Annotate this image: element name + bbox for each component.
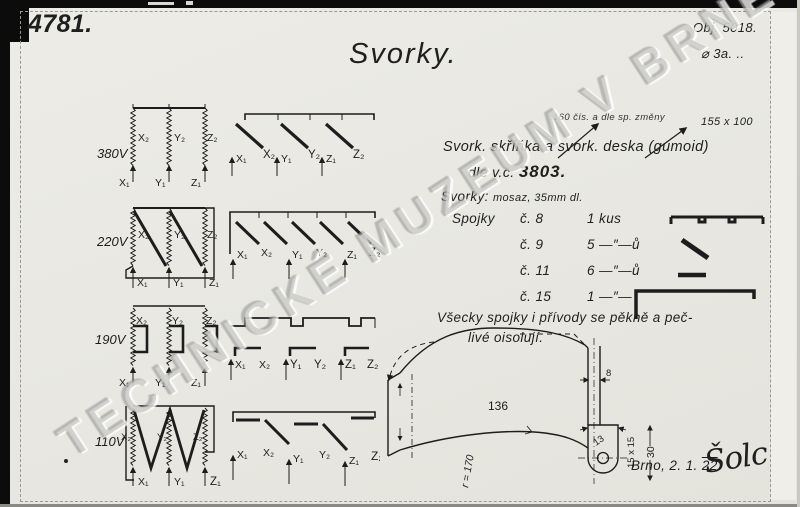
svg-text:X₂: X₂ xyxy=(138,229,149,241)
link-count: 1 kus xyxy=(587,211,621,226)
svg-text:Y₂: Y₂ xyxy=(314,359,326,371)
svg-text:Z₁: Z₁ xyxy=(191,177,201,189)
size-note: 155 x 100 xyxy=(701,116,753,128)
svg-text:Z₁: Z₁ xyxy=(345,359,356,371)
svg-text:Y₂: Y₂ xyxy=(316,247,327,259)
svg-text:Y₂: Y₂ xyxy=(157,432,167,443)
schematic-110v: 110V X₂ Y₂ Z₂ X₁ Y₁ Z₁ X₁ xyxy=(93,392,380,493)
svg-text:X₁: X₁ xyxy=(237,249,248,261)
note-box-and-plate: Svork. skříňka a svork. deska (gumoid) xyxy=(443,139,709,155)
note-per-drawing: dle v.č. 3803. xyxy=(468,162,566,182)
referenced-drawing-number: 3803. xyxy=(519,162,567,181)
scan-speck xyxy=(186,1,193,5)
svg-text:X₂: X₂ xyxy=(263,447,274,459)
link-number: č. 15 xyxy=(520,289,551,304)
short-link-icon xyxy=(674,269,734,281)
strap-detail-drawing: 136 r = 170 8 13 15 x 15 30 xyxy=(372,318,702,503)
scan-speck xyxy=(148,2,174,5)
svg-text:Z₁: Z₁ xyxy=(326,153,336,165)
voltage-label: 220V xyxy=(96,234,129,249)
links-list-label: Spojky xyxy=(452,211,495,226)
dim-tab-width: 8 xyxy=(606,368,611,379)
svg-text:Z₁: Z₁ xyxy=(209,277,219,289)
svg-text:Z₂: Z₂ xyxy=(369,247,380,259)
schematic-220v: 220V X₂ Y₂ Z₂ X₁ Y₁ Z₁ X₁ xyxy=(93,194,380,294)
object-number: Obj. 5018. xyxy=(693,20,757,35)
links-list: Spojky č. 8 1 kus č. 9 5 —″—ů č. 11 6 —″… xyxy=(452,211,782,315)
links-row-8: Spojky č. 8 1 kus xyxy=(452,211,782,237)
svg-text:Y₁: Y₁ xyxy=(174,476,185,488)
svg-text:Z₁: Z₁ xyxy=(347,249,357,261)
link-count: 5 —″—ů xyxy=(587,237,640,252)
terminals-label: Svorky: xyxy=(441,189,489,204)
svg-text:Z₂: Z₂ xyxy=(207,229,218,241)
svg-text:X₁: X₁ xyxy=(119,177,130,189)
svg-text:Y₁: Y₁ xyxy=(293,453,304,465)
svg-text:X₂: X₂ xyxy=(138,132,149,144)
object-subnumber: ⌀ 3a. .. xyxy=(701,46,745,62)
svg-text:Y₁: Y₁ xyxy=(290,359,302,371)
scan-speck xyxy=(64,459,68,463)
svg-text:X₂: X₂ xyxy=(261,247,272,259)
svg-text:Y₁: Y₁ xyxy=(155,377,166,389)
svg-text:X₁: X₁ xyxy=(237,449,248,461)
voltage-label: 190V xyxy=(95,332,127,347)
note-terminals-material: Svorky: mosaz, 35mm dl. xyxy=(441,189,583,204)
svg-text:X₁: X₁ xyxy=(119,377,130,389)
connection-diagrams-box: 380V X₂ Y₂ Z₂ X₁ Y₁ Z₁ X₁ X₂ Y₁ Y₂ xyxy=(93,92,384,497)
svg-text:Z₁: Z₁ xyxy=(191,377,201,389)
svg-text:X₁: X₁ xyxy=(138,476,149,488)
svg-text:Z₂: Z₂ xyxy=(193,432,203,443)
link-number: č. 8 xyxy=(520,211,543,226)
svg-text:Y₁: Y₁ xyxy=(173,277,184,289)
schematic-380v: 380V X₂ Y₂ Z₂ X₁ Y₁ Z₁ X₁ X₂ Y₁ Y₂ xyxy=(93,92,380,194)
link-number: č. 9 xyxy=(520,237,543,252)
svg-text:Z₂: Z₂ xyxy=(207,132,218,144)
diagonal-link-icon xyxy=(674,237,734,261)
note-per-drawing-prefix: dle v.č. xyxy=(468,164,515,180)
svg-text:Y₂: Y₂ xyxy=(319,449,330,461)
schematic-190v: 190V X₂ Y₂ Z₂ X₁ Y₁ Z₁ X₁ X₂ xyxy=(93,294,380,392)
links-row-9: č. 9 5 —″—ů xyxy=(452,237,782,263)
svg-text:Y₁: Y₁ xyxy=(281,153,292,165)
bridge-bar-icon xyxy=(667,211,767,229)
svg-text:Y₁: Y₁ xyxy=(155,177,166,189)
terminals-material: mosaz, 35mm dl. xyxy=(493,192,583,204)
link-count: 1 —″— xyxy=(587,289,632,304)
scan-edge-left xyxy=(0,0,10,507)
page-title: Svorky. xyxy=(349,38,458,71)
dim-radius: r = 170 xyxy=(459,454,477,489)
svg-text:Z₂: Z₂ xyxy=(206,315,217,327)
link-number: č. 11 xyxy=(520,263,550,278)
svg-text:X₁: X₁ xyxy=(137,277,148,289)
voltage-label: 380V xyxy=(97,146,129,161)
svg-text:X₂: X₂ xyxy=(263,149,275,161)
svg-text:Y₁: Y₁ xyxy=(292,249,303,261)
drawing-number: 4781. xyxy=(28,10,93,39)
svg-text:Z₁: Z₁ xyxy=(349,455,359,467)
dim-length: 136 xyxy=(488,399,508,413)
link-count: 6 —″—ů xyxy=(587,263,640,278)
scan-edge-top xyxy=(0,0,800,8)
svg-text:Z₁: Z₁ xyxy=(210,476,221,488)
svg-text:Y₂: Y₂ xyxy=(174,132,185,144)
revision-note: 160 čís. a dle sp. změny xyxy=(553,112,665,123)
svg-text:X₂: X₂ xyxy=(136,315,147,327)
svg-text:Z₂: Z₂ xyxy=(353,149,365,161)
svg-text:X₁: X₁ xyxy=(235,359,246,371)
svg-text:Y₂: Y₂ xyxy=(308,149,320,161)
svg-text:X₂: X₂ xyxy=(259,359,270,371)
scanned-drawing-sheet: 4781. Obj. 5018. ⌀ 3a. .. Svorky. 380V X… xyxy=(0,0,800,507)
dim-pad-height: 30 xyxy=(645,446,657,458)
svg-text:X₁: X₁ xyxy=(236,153,247,165)
svg-text:Y₂: Y₂ xyxy=(172,315,183,327)
svg-text:Y₂: Y₂ xyxy=(174,229,185,241)
svg-text:X₂: X₂ xyxy=(121,432,131,443)
